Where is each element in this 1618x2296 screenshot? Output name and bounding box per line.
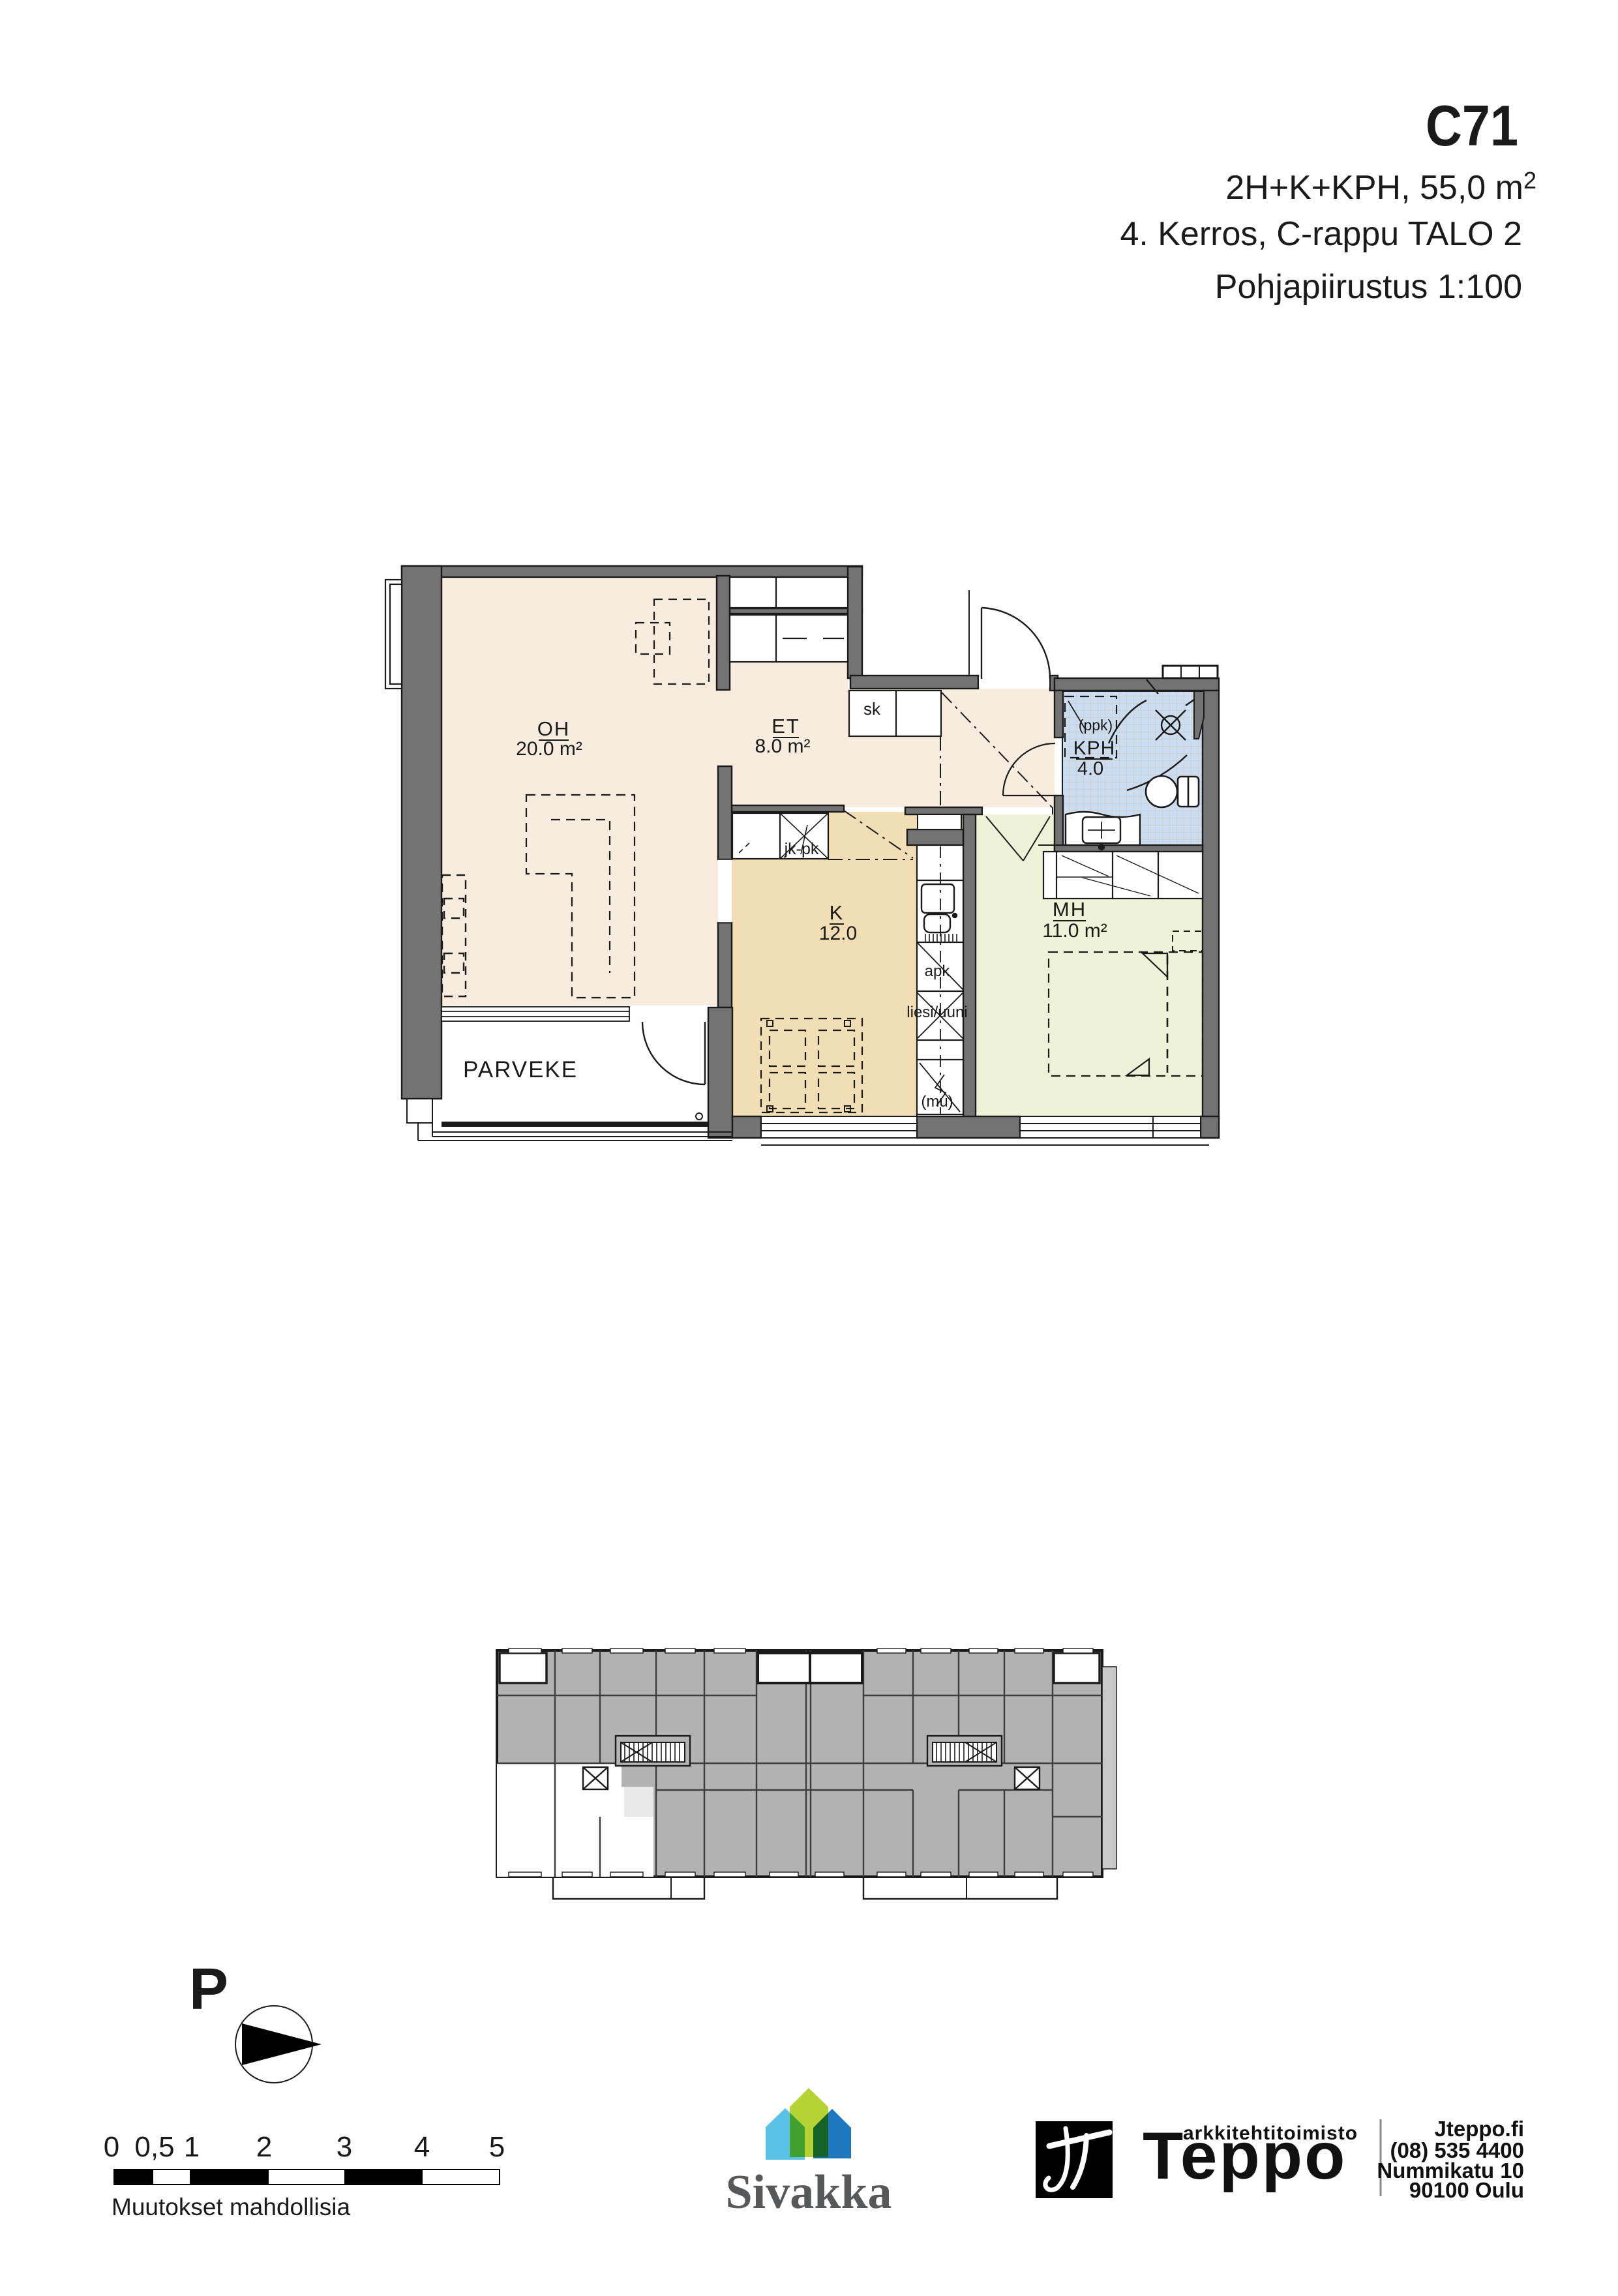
- svg-text:0,5: 0,5: [134, 2131, 174, 2163]
- svg-text:KPH: KPH: [1073, 738, 1116, 759]
- svg-text:Muutokset mahdollisia: Muutokset mahdollisia: [112, 2194, 350, 2220]
- svg-text:MH: MH: [1053, 898, 1086, 921]
- svg-text:1: 1: [184, 2131, 200, 2163]
- svg-text:apk: apk: [925, 962, 951, 980]
- svg-text:Pohjapiirustus 1:100: Pohjapiirustus 1:100: [1215, 268, 1522, 306]
- svg-text:2: 2: [256, 2131, 272, 2163]
- svg-text:12.0: 12.0: [819, 923, 857, 944]
- svg-text:sk: sk: [863, 699, 881, 719]
- svg-text:4.0: 4.0: [1077, 758, 1103, 779]
- svg-text:PARVEKE: PARVEKE: [463, 1057, 578, 1082]
- svg-text:(ppk): (ppk): [1079, 717, 1113, 734]
- svg-text:(mu): (mu): [921, 1093, 953, 1111]
- svg-text:4. Kerros, C-rappu TALO 2: 4. Kerros, C-rappu TALO 2: [1120, 215, 1522, 253]
- svg-text:OH: OH: [537, 717, 571, 740]
- svg-text:K: K: [830, 901, 845, 924]
- svg-text:90100 Oulu: 90100 Oulu: [1409, 2178, 1524, 2202]
- svg-text:20.0 m²: 20.0 m²: [516, 738, 582, 760]
- svg-text:ET: ET: [772, 715, 800, 738]
- svg-text:5: 5: [489, 2131, 505, 2163]
- svg-text:4: 4: [414, 2131, 430, 2163]
- svg-text:3: 3: [337, 2131, 352, 2163]
- svg-text:Jteppo.fi: Jteppo.fi: [1435, 2117, 1525, 2141]
- svg-text:P: P: [189, 1957, 228, 2022]
- svg-text:Sivakka: Sivakka: [725, 2166, 891, 2219]
- svg-text:jk-pk: jk-pk: [784, 840, 819, 858]
- svg-text:liesi/uuni: liesi/uuni: [906, 1004, 967, 1021]
- svg-text:Teppo: Teppo: [1143, 2119, 1347, 2193]
- svg-text:0: 0: [104, 2131, 119, 2163]
- svg-text:8.0 m²: 8.0 m²: [755, 736, 810, 757]
- svg-text:2H+K+KPH, 55,0 m2: 2H+K+KPH, 55,0 m2: [1225, 167, 1536, 207]
- svg-text:11.0 m²: 11.0 m²: [1042, 920, 1107, 942]
- svg-text:C71: C71: [1426, 93, 1518, 158]
